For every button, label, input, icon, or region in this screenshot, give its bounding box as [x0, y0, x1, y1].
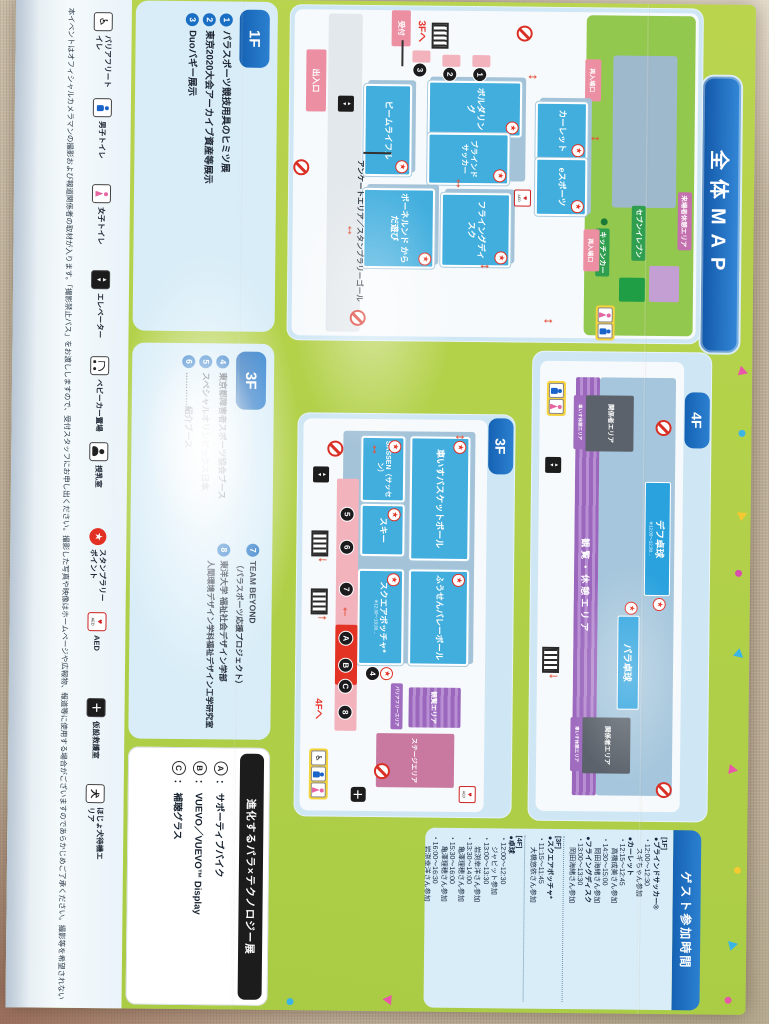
- confetti-dot: [734, 867, 741, 874]
- legend-item: ベビーカー置場: [90, 356, 110, 433]
- no-entry-icon: [374, 763, 390, 779]
- route-arrow-icon: ↔: [454, 177, 467, 190]
- stamp-rally-point-icon: [453, 441, 466, 454]
- male-toilet-icon: [549, 383, 564, 398]
- number-badge: 8: [217, 543, 230, 556]
- stamp-rally-point-icon: [653, 598, 666, 611]
- letter-badge: C: [172, 761, 186, 775]
- room-blind-soccer: ブラインドサッカー: [427, 133, 510, 186]
- stairs-icon: [542, 647, 559, 673]
- number-badge: 2: [203, 13, 216, 26]
- map-1f: 来場者休憩エリア セブンイレブン キッチンカー 再入場口 再入場口 ↕: [286, 4, 703, 344]
- female-toilet-icon: [598, 307, 613, 322]
- legend-item: 仮設救護室: [86, 698, 106, 775]
- staff-area: 関係者エリア: [585, 395, 634, 451]
- room-bornelund: ボーネルンド からだ遊び: [362, 188, 435, 269]
- list-item: 7TEAM BEYOND: [244, 544, 258, 734]
- route-arrow-icon: ↑: [317, 614, 330, 621]
- male-toilet-icon: [311, 766, 326, 781]
- stamp-rally-point-icon: [387, 573, 400, 586]
- number-badge: 7: [246, 544, 259, 557]
- floor-pill-3f: 3F: [488, 418, 514, 474]
- stamp-rally-point-icon: [395, 160, 408, 173]
- room-esports: eスポーツ: [535, 158, 588, 217]
- stamp-rally-icon: [90, 528, 107, 545]
- booth-marker-5: 5: [340, 507, 355, 522]
- schedule-line: 岡田海緒さん参加: [565, 836, 575, 1002]
- schedule-line: ・12:00～12:30: [496, 835, 506, 1001]
- stroller-icon: [91, 356, 110, 375]
- number-badge: 5: [199, 355, 212, 368]
- wheelchair-rest-area: 車いす休憩エリア: [570, 717, 583, 771]
- number-badge: 1: [220, 13, 233, 26]
- confetti-triangle: [728, 764, 739, 775]
- no-entry-icon: [327, 441, 343, 457]
- stamp-rally-point-icon: [493, 169, 506, 182]
- nursing-room-icon: [90, 442, 109, 461]
- deaf-table-tennis-banner: デフ卓球 ※12:00～12:30…: [644, 482, 671, 596]
- route-arrow-icon: ↕: [454, 434, 467, 441]
- deaf-tt-note: ※12:00～12:30…: [647, 521, 653, 556]
- schedule-line: ●フライングディスク: [581, 836, 591, 1002]
- tech-item: B：VUEVO／VUEVO™ Display: [191, 761, 207, 995]
- legend-item: 女子トイレ: [92, 184, 112, 261]
- para-table-tennis-banner: パラ卓球: [617, 616, 640, 710]
- schedule-line: ・13:00～13:30: [479, 835, 489, 1001]
- legend-item: 男子トイレ: [93, 98, 113, 175]
- room-carlet: カーレット: [535, 102, 588, 161]
- schedule-line: [4F]: [513, 836, 523, 1002]
- schedule-line: ●カーレット: [624, 837, 634, 1003]
- female-toilet-icon: [311, 782, 326, 797]
- schedule-line: 大橋悠依さん参加: [526, 836, 536, 1002]
- list-3f: 3F 4東京都障害者スポーツ協会ブース 5スペシャルオリンピックス日本 6…………: [128, 342, 274, 739]
- number-badge: 3: [186, 13, 199, 26]
- wheelchair-icon: [94, 12, 113, 31]
- schedule-line: ・16:00～16:30: [429, 835, 439, 1001]
- confetti-dot: [735, 570, 742, 577]
- route-arrow-icon: ↕: [543, 318, 556, 325]
- list-item: 4東京都障害者スポーツ協会ブース: [214, 355, 228, 535]
- legend-item: ほじょ犬待機エリア: [85, 784, 105, 861]
- booth-strip: [412, 50, 430, 62]
- aed-icon: [514, 189, 531, 206]
- map-1f-floorplan: 来場者休憩エリア セブンイレブン キッチンカー 再入場口 再入場口 ↕: [292, 9, 699, 339]
- booth-marker-3: 3: [412, 62, 427, 77]
- route-arrow-icon: ←: [341, 605, 354, 619]
- stamp-rally-point-icon: [494, 251, 507, 264]
- list-item: 1パラスポーツ競技用具のヒミツ展: [217, 13, 232, 323]
- legend-item: スタンプラリーポイント: [89, 528, 108, 603]
- legend-item: エレベーター: [91, 270, 111, 347]
- confetti-dot: [738, 430, 745, 437]
- staff-area: 関係者エリア: [582, 717, 631, 773]
- confetti-triangle: [737, 508, 749, 521]
- seven-eleven-store: [619, 278, 645, 302]
- tech-marker-a: A: [338, 631, 353, 646]
- legend-item: バリアフリートイレ: [94, 12, 114, 89]
- confetti-dot: [725, 997, 732, 1004]
- reentry-gate-label: 再入場口: [583, 229, 599, 271]
- visitor-rest-area: [649, 266, 679, 302]
- entrance-label: 出入口: [306, 49, 327, 111]
- elevator-icon: [313, 466, 329, 482]
- toilet-cluster: ♿: [309, 748, 329, 799]
- male-toilet-icon: [93, 98, 112, 117]
- booth-marker-8: 8: [337, 705, 352, 720]
- confetti-triangle: [733, 648, 746, 661]
- leader-line: [363, 152, 391, 154]
- to-4f-label: 4Fへ: [312, 698, 326, 719]
- no-entry-icon: [350, 310, 366, 326]
- route-arrow-icon: ↓: [317, 556, 330, 563]
- legend-item: 授乳室: [89, 442, 109, 519]
- map-4f: 4F デフ卓球 ※12:00～12:30… パラ卓球 観覧・休憩エリア 関係者エ…: [527, 351, 712, 823]
- wheelchair-rest-area: 車いす休憩エリア: [573, 395, 586, 449]
- map-3f: 3F 車いすバスケットボール ふうせんバレーボール SASSEN（サッセン） ス…: [293, 412, 515, 818]
- no-entry-icon: [655, 420, 671, 436]
- route-arrow-icon: ↔: [346, 224, 359, 237]
- outdoor-yard: 来場者休憩エリア セブンイレブン キッチンカー 再入場口 再入場口 ↕: [584, 15, 696, 336]
- list-pill-1f: 1F: [239, 10, 270, 68]
- list-item: 3Duoバギー展示: [183, 13, 198, 323]
- room-balloon-volleyball: ふうせんバレーボール: [408, 569, 469, 666]
- elevator-icon: [338, 96, 354, 112]
- barrier-free-area: バリアフリーエリア: [390, 683, 402, 729]
- schedule-line: ●スクエアボッチャ*: [543, 836, 553, 1002]
- guest-schedule-title: ゲスト参加時間: [671, 830, 701, 1010]
- page-title-text: 全体MAP: [706, 150, 736, 280]
- route-arrow-icon: ↕: [479, 263, 492, 270]
- schedule-line: 岩渕幸洋さん参加: [471, 835, 481, 1001]
- assistance-dog-icon: [86, 784, 105, 803]
- list-1f: 1F 1パラスポーツ競技用具のヒミツ展 2東京2020大会アーカイブ資産等展示 …: [133, 1, 278, 332]
- to-3f-label: 3Fへ: [416, 20, 431, 42]
- list-item: 8東洋大学 福祉社会デザイン学部: [215, 543, 229, 733]
- booth-strip: [442, 55, 460, 67]
- toilet-cluster: [595, 305, 614, 340]
- map-4f-floorplan: デフ卓球 ※12:00～12:30… パラ卓球 観覧・休憩エリア 関係者エリア …: [536, 361, 685, 812]
- stamp-rally-point-icon: [452, 574, 465, 587]
- room-ski: スキー: [360, 504, 405, 556]
- booth-marker-6: 6: [339, 540, 354, 555]
- room-bouldering: ボルダリング: [428, 81, 523, 138]
- booth-marker-1: 1: [472, 67, 487, 82]
- list-item: 2東京2020大会アーカイブ資産等展示: [200, 13, 215, 323]
- stamp-rally-point-icon: [380, 667, 393, 680]
- female-toilet-icon: [549, 399, 564, 414]
- photo-of-event-map: 全体MAP 来場者休憩エリア セブンイレブン キッチンカー: [0, 0, 769, 1024]
- schedule-line: ●卓球: [504, 835, 514, 1001]
- route-arrow-icon: ↔: [370, 443, 383, 456]
- schedule-line: 高橋成美さん参加: [607, 837, 617, 1003]
- list-item-sub: 人間環境デザイン学科福祉デザイン工学研究室: [203, 543, 215, 733]
- number-badge: 6: [182, 355, 195, 368]
- no-entry-icon: [517, 25, 533, 41]
- confetti-dot: [287, 998, 294, 1005]
- no-entry-icon: [293, 159, 309, 175]
- list-item: 6…………紹介ブース: [180, 355, 194, 535]
- event-map-pamphlet: 全体MAP 来場者休憩エリア セブンイレブン キッチンカー: [5, 0, 756, 1015]
- survey-area-label: アンケートエリア／スタンプラリーゴール: [355, 160, 366, 328]
- route-arrow-icon: ↕: [527, 74, 540, 81]
- stamp-rally-point-icon: [571, 200, 584, 213]
- stairs-icon: [311, 530, 328, 556]
- tech-exhibition-box: 進化するパラ×テクノロジー展 A：サポーティブバイク B：VUEVO／VUEVO…: [125, 746, 270, 1005]
- schedule-line: 亀澤理穂さん参加: [454, 835, 464, 1001]
- tech-exhibition-title: 進化するパラ×テクノロジー展: [238, 754, 265, 1000]
- stamp-rally-point-icon: [625, 602, 638, 615]
- booth-strip: [472, 55, 490, 67]
- stairs-icon: [311, 588, 328, 614]
- map-3f-floorplan: 車いすバスケットボール ふうせんバレーボール SASSEN（サッセン） スキー …: [300, 418, 488, 812]
- visitor-rest-area-label: 来場者休憩エリア: [677, 192, 692, 250]
- letter-badge: A: [214, 761, 228, 775]
- legend-item: AED: [87, 612, 107, 689]
- wheelchair-toilet-icon: ♿: [311, 750, 326, 765]
- confetti-triangle: [728, 939, 739, 951]
- floor-pill-4f: 4F: [684, 392, 710, 448]
- square-boccia-note: ※12:30～13:30…: [373, 599, 379, 634]
- elevator-icon: [545, 457, 561, 473]
- first-aid-room-icon: [351, 787, 366, 802]
- viewing-area: 観覧エリア: [408, 687, 460, 728]
- schedule-line: 岡田海緒さん参加: [590, 836, 600, 1002]
- tech-item: C：補聴グラス: [170, 761, 186, 995]
- tech-marker-b: B: [338, 658, 353, 673]
- page-title: 全体MAP: [698, 74, 743, 354]
- room-beam-rifle: ビームライフル: [363, 84, 412, 176]
- aed-icon: [88, 612, 107, 631]
- booth-marker-4: 4: [365, 666, 380, 681]
- guest-schedule-panel: ゲスト参加時間 [1F] ●ブラインドサッカー® ・12:00～12:30 スギ…: [423, 828, 701, 1011]
- reentry-gate-label: 再入場口: [585, 59, 601, 101]
- aed-icon: [459, 786, 476, 803]
- leader-line: [402, 40, 404, 66]
- toilet-cluster: [547, 381, 566, 416]
- confetti-triangle: [738, 366, 750, 378]
- tech-marker-c: C: [338, 679, 353, 694]
- stamp-rally-point-icon: [418, 252, 431, 265]
- stage-area: ステージエリア: [376, 733, 455, 788]
- booth-marker-7: 7: [339, 582, 354, 597]
- stairs-icon: [432, 23, 449, 49]
- room-flying-disc: フライングディスク: [440, 193, 511, 268]
- male-toilet-icon: [598, 323, 613, 338]
- stamp-rally-point-icon: [388, 440, 401, 453]
- confetti-triangle: [383, 995, 396, 1007]
- stamp-rally-point-icon: [388, 508, 401, 521]
- stamp-rally-point-icon: [571, 144, 584, 157]
- number-badge: 4: [216, 355, 229, 368]
- first-aid-icon: [87, 698, 106, 717]
- schedule-line: ジャビット参加: [487, 835, 497, 1001]
- list-pill-3f: 3F: [236, 352, 267, 410]
- list-item: 5スペシャルオリンピックス日本: [197, 355, 211, 535]
- no-entry-icon: [656, 782, 672, 798]
- tech-item: A：サポーティブバイク: [212, 761, 228, 995]
- elevator-icon: [91, 270, 110, 289]
- female-toilet-icon: [92, 184, 111, 203]
- room-square-boccia: スクエアボッチャ*※12:30～13:30…: [357, 569, 404, 665]
- schedule-line: ●ブラインドサッカー®: [649, 837, 659, 1003]
- letter-badge: B: [193, 761, 207, 775]
- schedule-line: 亀澤理穂さん参加: [437, 835, 447, 1001]
- route-arrow-icon: ↓: [548, 673, 561, 680]
- booth-marker-2: 2: [442, 67, 457, 82]
- kitchen-car-dot: [601, 218, 608, 225]
- room-wheelchair-basketball: 車いすバスケットボール: [409, 436, 470, 561]
